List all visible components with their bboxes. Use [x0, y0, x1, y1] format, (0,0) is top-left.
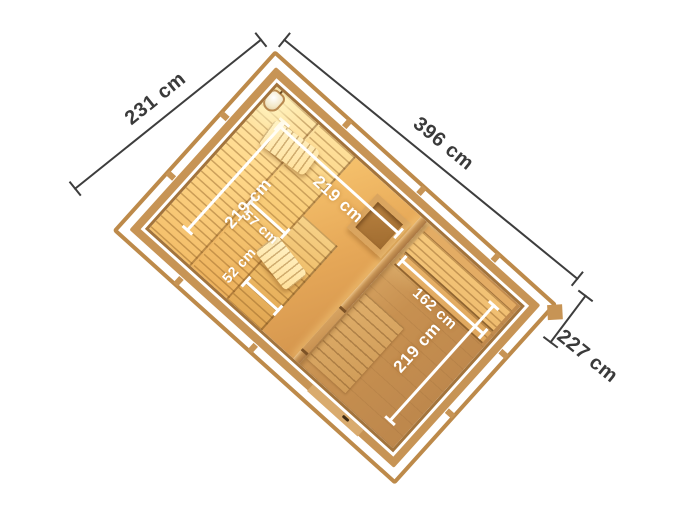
- dimension-227-label: 227 cm: [553, 326, 621, 387]
- sauna-building: 219 cm 219 cm 219 cm 162 cm 57 cm 52 cm: [112, 50, 557, 485]
- sauna-floorplan-illustration: 231 cm 396 cm 227 cm: [0, 0, 700, 525]
- dimension-231-label: 231 cm: [121, 68, 189, 128]
- dimension-396-label: 396 cm: [410, 113, 478, 174]
- roof-corner-beam: [547, 304, 563, 320]
